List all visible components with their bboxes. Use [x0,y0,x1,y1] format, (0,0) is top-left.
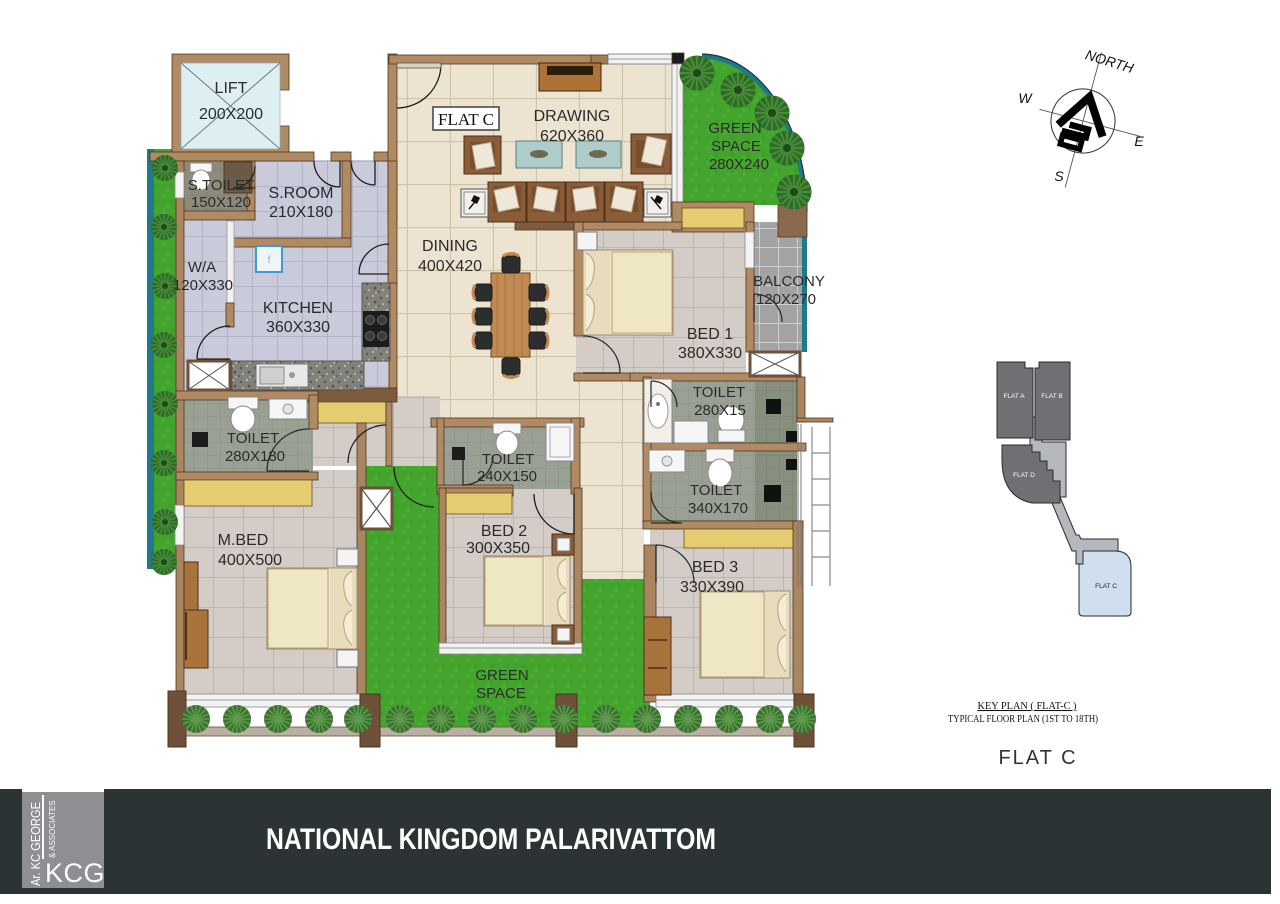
svg-text:KITCHEN: KITCHEN [263,300,333,317]
svg-text:FLAT B: FLAT B [1041,393,1062,400]
svg-text:DRAWING: DRAWING [534,108,611,125]
svg-text:GREEN: GREEN [475,667,528,684]
svg-text:BALCONY: BALCONY [753,273,825,290]
svg-text:NATIONAL KINGDOM PALARIVATTOM: NATIONAL KINGDOM PALARIVATTOM [266,823,716,856]
svg-text:TYPICAL FLOOR PLAN (1ST TO 18T: TYPICAL FLOOR PLAN (1ST TO 18TH) [948,714,1098,725]
svg-text:E: E [1134,133,1144,149]
svg-text:SPACE: SPACE [476,685,526,702]
svg-text:150X120: 150X120 [191,194,251,211]
svg-text:GREEN: GREEN [708,120,761,137]
svg-text:340X170: 340X170 [688,500,748,517]
svg-text:S: S [1054,168,1064,184]
svg-text:TOILET: TOILET [693,384,745,401]
svg-text:BED 3: BED 3 [692,559,738,576]
svg-text:Ar. KC GEORGE: Ar. KC GEORGE [28,802,43,886]
svg-text:LIFT: LIFT [215,80,248,97]
svg-text:380X330: 380X330 [678,345,742,362]
svg-text:TOILET: TOILET [227,430,279,447]
svg-text:KCG: KCG [45,858,105,888]
svg-text:FLAT A: FLAT A [1003,393,1025,400]
svg-text:FLAT C: FLAT C [1095,583,1117,590]
svg-text:300X350: 300X350 [466,540,530,557]
svg-text:330X390: 330X390 [680,579,744,596]
svg-text:FLAT C: FLAT C [998,747,1077,769]
svg-text:S.TOILET: S.TOILET [188,177,254,194]
svg-text:M.BED: M.BED [218,532,269,549]
svg-text:FLAT D: FLAT D [1013,472,1035,479]
svg-text:620X360: 620X360 [540,128,604,145]
svg-text:360X330: 360X330 [266,319,330,336]
svg-text:120X270: 120X270 [756,291,816,308]
svg-text:280X240: 280X240 [709,156,769,173]
svg-text:f: f [268,255,271,266]
svg-text:S.ROOM: S.ROOM [269,185,334,202]
svg-text:DINING: DINING [422,238,478,255]
svg-text:400X500: 400X500 [218,552,282,569]
svg-text:120X330: 120X330 [173,277,233,294]
svg-text:W/A: W/A [188,259,216,276]
svg-text:TOILET: TOILET [690,482,742,499]
svg-text:FLAT C: FLAT C [438,110,494,129]
svg-text:BED 1: BED 1 [687,326,733,343]
svg-text:SPACE: SPACE [711,138,761,155]
svg-text:KEY PLAN ( FLAT-C ): KEY PLAN ( FLAT-C ) [978,701,1077,712]
svg-text:200X200: 200X200 [199,106,263,123]
svg-text:400X420: 400X420 [418,258,482,275]
svg-text:BED 2: BED 2 [481,523,527,540]
svg-text:280X180: 280X180 [225,448,285,465]
svg-text:& ASSOCIATES: & ASSOCIATES [48,800,57,858]
svg-text:W: W [1018,90,1033,106]
svg-text:TOILET: TOILET [482,451,534,468]
svg-text:210X180: 210X180 [269,204,333,221]
svg-text:240X150: 240X150 [477,468,537,485]
svg-text:280X15: 280X15 [694,402,746,419]
